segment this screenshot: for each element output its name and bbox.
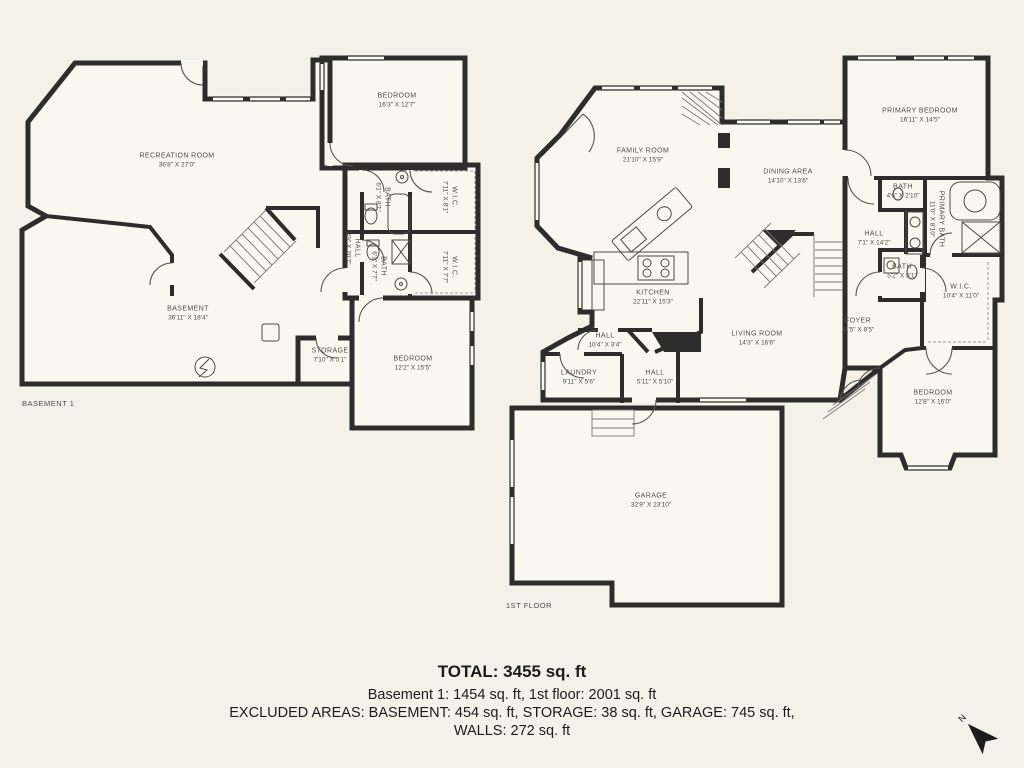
room-dims: 7'1" X 14'2" [857, 240, 890, 247]
room-dims: 11'0" X 8'10" [928, 191, 935, 248]
room-label-primary-bedroom: PRIMARY BEDROOM 16'11" X 14'5" [882, 108, 958, 125]
room-label-bedroom-first: BEDROOM 12'8" X 16'0" [914, 390, 953, 407]
room-name: GARAGE [631, 493, 671, 501]
excluded-areas-text: EXCLUDED AREAS: BASEMENT: 454 sq. ft, ST… [0, 704, 1024, 722]
room-name: PRIMARY BATH [936, 191, 944, 248]
room-dims: 22'11" X 15'3" [633, 299, 673, 306]
room-dims: 11'5" X 8'5" [842, 327, 875, 334]
room-name: BASEMENT [167, 306, 209, 314]
room-dims: 36'11" X 18'4" [167, 315, 209, 322]
room-dims: 12'2" X 15'5" [394, 365, 433, 372]
room-name: BEDROOM [914, 390, 953, 398]
room-name: LIVING ROOM [731, 331, 782, 339]
room-label-wic-bottom: W.I.C. 7'11" X 7'7" [441, 251, 458, 284]
total-area-text: TOTAL: 3455 sq. ft [0, 662, 1024, 682]
floorplans-drawing: N [0, 0, 1024, 768]
room-dims: 3'9" X 20'7" [344, 231, 351, 264]
room-dims: 5'2" X 5'1" [887, 273, 917, 280]
room-name: PRIMARY BEDROOM [882, 108, 958, 116]
area-summary: TOTAL: 3455 sq. ft Basement 1: 1454 sq. … [0, 662, 1024, 740]
room-dims: 32'9" X 23'10" [631, 502, 671, 509]
room-name: W.I.C. [943, 284, 979, 292]
floor-label-basement: BASEMENT 1 [22, 399, 74, 408]
room-dims: 16'3" X 12'7" [378, 102, 417, 109]
room-label-dining-area: DINING AREA 14'10" X 13'6" [763, 169, 813, 186]
room-name: BATH [382, 182, 390, 212]
floor-label-first-floor: 1ST FLOOR [506, 601, 552, 610]
room-dims: 14'3" X 16'6" [731, 340, 782, 347]
room-name: BATH [886, 184, 919, 192]
room-dims: 4'6" X 2'10" [886, 193, 919, 200]
room-label-primary-bath: PRIMARY BATH 11'0" X 8'10" [928, 191, 945, 248]
room-label-bath-top: BATH 6'1" X 8'1" [374, 182, 391, 212]
room-label-laundry: LAUNDRY 9'11" X 5'6" [561, 370, 597, 387]
room-label-bath-bottom: BATH 6'1" X 7'7" [370, 251, 387, 281]
room-dims: 7'11" X 8'1" [441, 181, 448, 214]
room-label-garage: GARAGE 32'9" X 23'10" [631, 493, 671, 510]
room-label-bedroom-bottom: BEDROOM 12'2" X 15'5" [394, 356, 433, 373]
floor-areas-text: Basement 1: 1454 sq. ft, 1st floor: 2001… [0, 686, 1024, 704]
room-name: HALL [637, 370, 673, 378]
room-dims: 5'11" X 5'10" [637, 379, 673, 386]
room-label-bedroom-top: BEDROOM 16'3" X 12'7" [378, 93, 417, 110]
room-label-kitchen: KITCHEN 22'11" X 15'3" [633, 290, 673, 307]
room-label-storage: STORAGE 7'10" X 5'1" [312, 348, 349, 365]
room-label-bath-small: BATH 4'6" X 2'10" [886, 184, 919, 201]
room-label-hall-lower: HALL 5'11" X 5'10" [637, 370, 673, 387]
room-label-foyer: FOYER 11'5" X 8'5" [842, 318, 875, 335]
room-dims: 12'8" X 16'0" [914, 399, 953, 406]
room-name: BATH [887, 264, 917, 272]
room-label-living-room: LIVING ROOM 14'3" X 16'6" [731, 331, 782, 348]
room-name: BEDROOM [394, 356, 433, 364]
room-dims: 7'10" X 5'1" [312, 357, 349, 364]
room-dims: 36'8" X 27'0" [139, 162, 214, 169]
room-label-hall-basement: HALL 3'9" X 20'7" [344, 231, 361, 264]
room-name: W.I.C. [449, 181, 457, 214]
room-name: BATH [378, 251, 386, 281]
room-name: BEDROOM [378, 93, 417, 101]
room-label-family-room: FAMILY ROOM 21'10" X 15'9" [617, 148, 669, 165]
room-dims: 6'1" X 8'1" [374, 182, 381, 212]
room-dims: 10'4" X 11'0" [943, 293, 979, 300]
room-label-wic: W.I.C. 10'4" X 11'0" [943, 284, 979, 301]
room-label-wic-top: W.I.C. 7'11" X 8'1" [441, 181, 458, 214]
room-name: HALL [857, 231, 890, 239]
room-dims: 9'11" X 5'6" [561, 379, 597, 386]
room-name: DINING AREA [763, 169, 813, 177]
room-name: W.I.C. [449, 251, 457, 284]
walls-area-text: WALLS: 272 sq. ft [0, 722, 1024, 740]
room-dims: 7'11" X 7'7" [441, 251, 448, 284]
room-name: FAMILY ROOM [617, 148, 669, 156]
room-name: FOYER [842, 318, 875, 326]
room-name: STORAGE [312, 348, 349, 356]
room-dims: 14'10" X 13'6" [763, 178, 813, 185]
room-name: HALL [588, 333, 621, 341]
room-label-bath-mid: BATH 5'2" X 5'1" [887, 264, 917, 281]
room-name: RECREATION ROOM [139, 153, 214, 161]
room-dims: 6'1" X 7'7" [370, 251, 377, 281]
room-label-basement: BASEMENT 36'11" X 18'4" [167, 306, 209, 323]
room-label-hall-upper: HALL 7'1" X 14'2" [857, 231, 890, 248]
room-dims: 21'10" X 15'9" [617, 157, 669, 164]
room-dims: 10'4" X 3'4" [588, 342, 621, 349]
room-name: KITCHEN [633, 290, 673, 298]
room-label-recreation-room: RECREATION ROOM 36'8" X 27'0" [139, 153, 214, 170]
room-label-hall-mid: HALL 10'4" X 3'4" [588, 333, 621, 350]
room-name: LAUNDRY [561, 370, 597, 378]
room-dims: 16'11" X 14'5" [882, 117, 958, 124]
room-name: HALL [352, 231, 360, 264]
